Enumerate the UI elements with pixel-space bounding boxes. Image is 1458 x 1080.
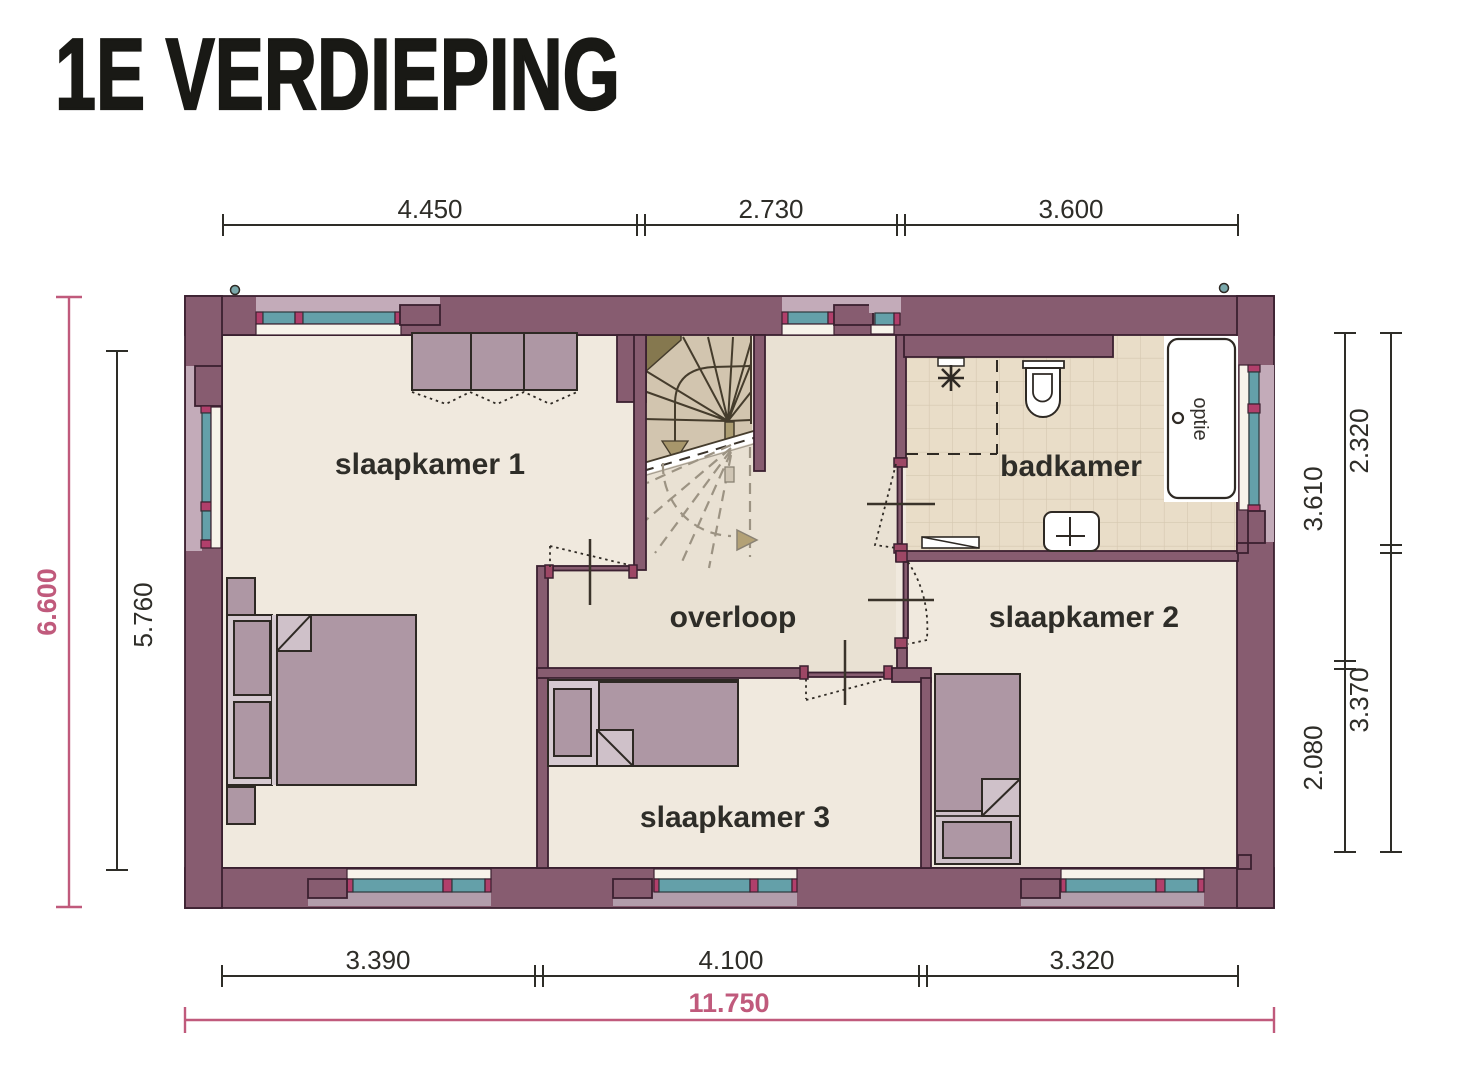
svg-text:3.370: 3.370: [1344, 667, 1374, 732]
svg-text:2.080: 2.080: [1298, 725, 1328, 790]
svg-text:4.100: 4.100: [698, 945, 763, 975]
svg-text:6.600: 6.600: [32, 568, 62, 636]
svg-text:badkamer: badkamer: [1000, 450, 1142, 483]
svg-text:slaapkamer 3: slaapkamer 3: [640, 801, 830, 834]
svg-text:2.320: 2.320: [1344, 408, 1374, 473]
svg-text:3.320: 3.320: [1049, 945, 1114, 975]
svg-text:3.600: 3.600: [1038, 194, 1103, 224]
svg-text:3.390: 3.390: [345, 945, 410, 975]
svg-text:overloop: overloop: [670, 601, 797, 634]
svg-text:slaapkamer 1: slaapkamer 1: [335, 448, 525, 481]
svg-text:3.610: 3.610: [1298, 466, 1328, 531]
svg-text:2.730: 2.730: [738, 194, 803, 224]
svg-text:4.450: 4.450: [397, 194, 462, 224]
svg-text:11.750: 11.750: [688, 988, 769, 1018]
svg-text:5.760: 5.760: [128, 582, 158, 647]
svg-text:1E VERDIEPING: 1E VERDIEPING: [55, 19, 620, 131]
svg-text:optie: optie: [1189, 397, 1211, 440]
svg-text:slaapkamer 2: slaapkamer 2: [989, 601, 1179, 634]
